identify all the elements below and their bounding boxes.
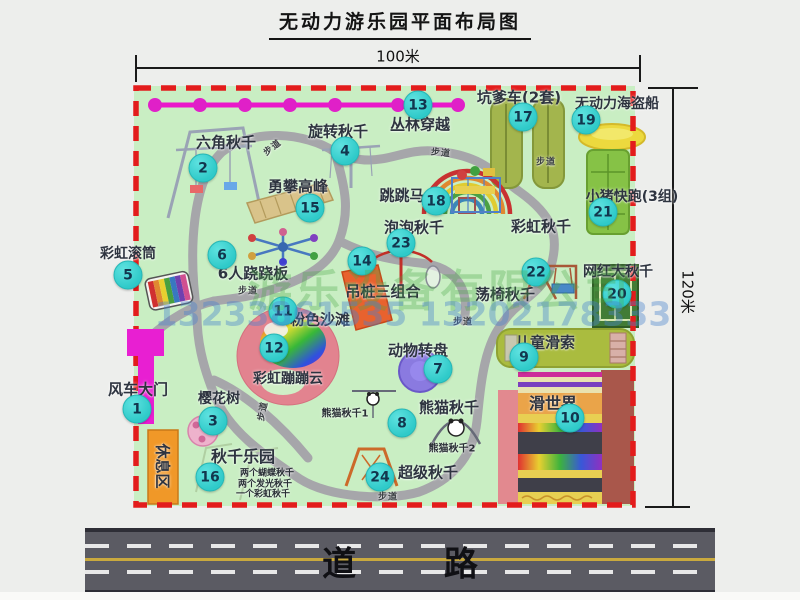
- facility-label: 超级秋千: [398, 462, 458, 483]
- facility-label: 秋千乐园: [211, 443, 275, 467]
- facility-label: 粉色沙滩: [290, 309, 350, 330]
- map-marker-16: 16: [196, 463, 225, 492]
- path-label: 步道: [453, 315, 473, 328]
- facility-label: 彩虹秋千: [511, 216, 571, 237]
- facility-label: 熊猫秋千1: [322, 405, 369, 420]
- map-marker-15: 15: [296, 194, 325, 223]
- facility-label: 一个彩虹秋千: [236, 487, 290, 500]
- map-marker-2: 2: [189, 154, 218, 183]
- map-marker-21: 21: [589, 198, 618, 227]
- facility-label: 网红大秋千: [583, 261, 653, 281]
- facility-label: 勇攀高峰: [268, 176, 328, 197]
- facility-label: 跳跳马: [379, 185, 424, 206]
- map-marker-19: 19: [572, 106, 601, 135]
- map-marker-20: 20: [603, 280, 632, 309]
- map-marker-23: 23: [387, 229, 416, 258]
- map-marker-10: 10: [556, 404, 585, 433]
- facility-label: 荡椅秋千: [475, 284, 535, 305]
- road: 道 路: [85, 528, 715, 594]
- map-marker-11: 11: [269, 297, 298, 326]
- map-marker-7: 7: [424, 355, 453, 384]
- seesaw-shape: [248, 228, 318, 266]
- map-marker-1: 1: [123, 395, 152, 424]
- facility-label: 六角秋千: [196, 132, 256, 153]
- map-marker-9: 9: [510, 343, 539, 372]
- facility-label: 樱花树: [198, 388, 240, 408]
- map-marker-8: 8: [388, 409, 417, 438]
- map-marker-24: 24: [366, 463, 395, 492]
- playground-plan: 无动力游乐园平面布局图: [0, 0, 800, 600]
- rainbow-roller-shape: [144, 271, 194, 311]
- facility-label: 休息区: [153, 443, 174, 488]
- road-label: 道 路: [284, 537, 516, 586]
- map-marker-22: 22: [522, 258, 551, 287]
- facility-label: 熊猫秋千: [419, 397, 479, 418]
- map-marker-13: 13: [404, 91, 433, 120]
- facility-label: 吊桩三组合: [345, 281, 420, 302]
- map-marker-5: 5: [114, 261, 143, 290]
- facility-label: 熊猫秋千2: [429, 440, 476, 455]
- map-marker-6: 6: [208, 241, 237, 270]
- map-marker-17: 17: [509, 103, 538, 132]
- path-label: 步道: [430, 144, 451, 159]
- map-marker-4: 4: [331, 137, 360, 166]
- dimension-width-label: 100米: [370, 46, 426, 67]
- dimension-height-label: 120米: [678, 264, 699, 320]
- path-label: 步道: [238, 284, 258, 297]
- map-marker-3: 3: [199, 407, 228, 436]
- path-label: 步道: [536, 155, 556, 168]
- map-marker-12: 12: [260, 334, 289, 363]
- facility-label: 彩虹蹦蹦云: [253, 368, 323, 388]
- road-margin: [0, 592, 800, 600]
- map-marker-18: 18: [422, 187, 451, 216]
- map-marker-14: 14: [348, 247, 377, 276]
